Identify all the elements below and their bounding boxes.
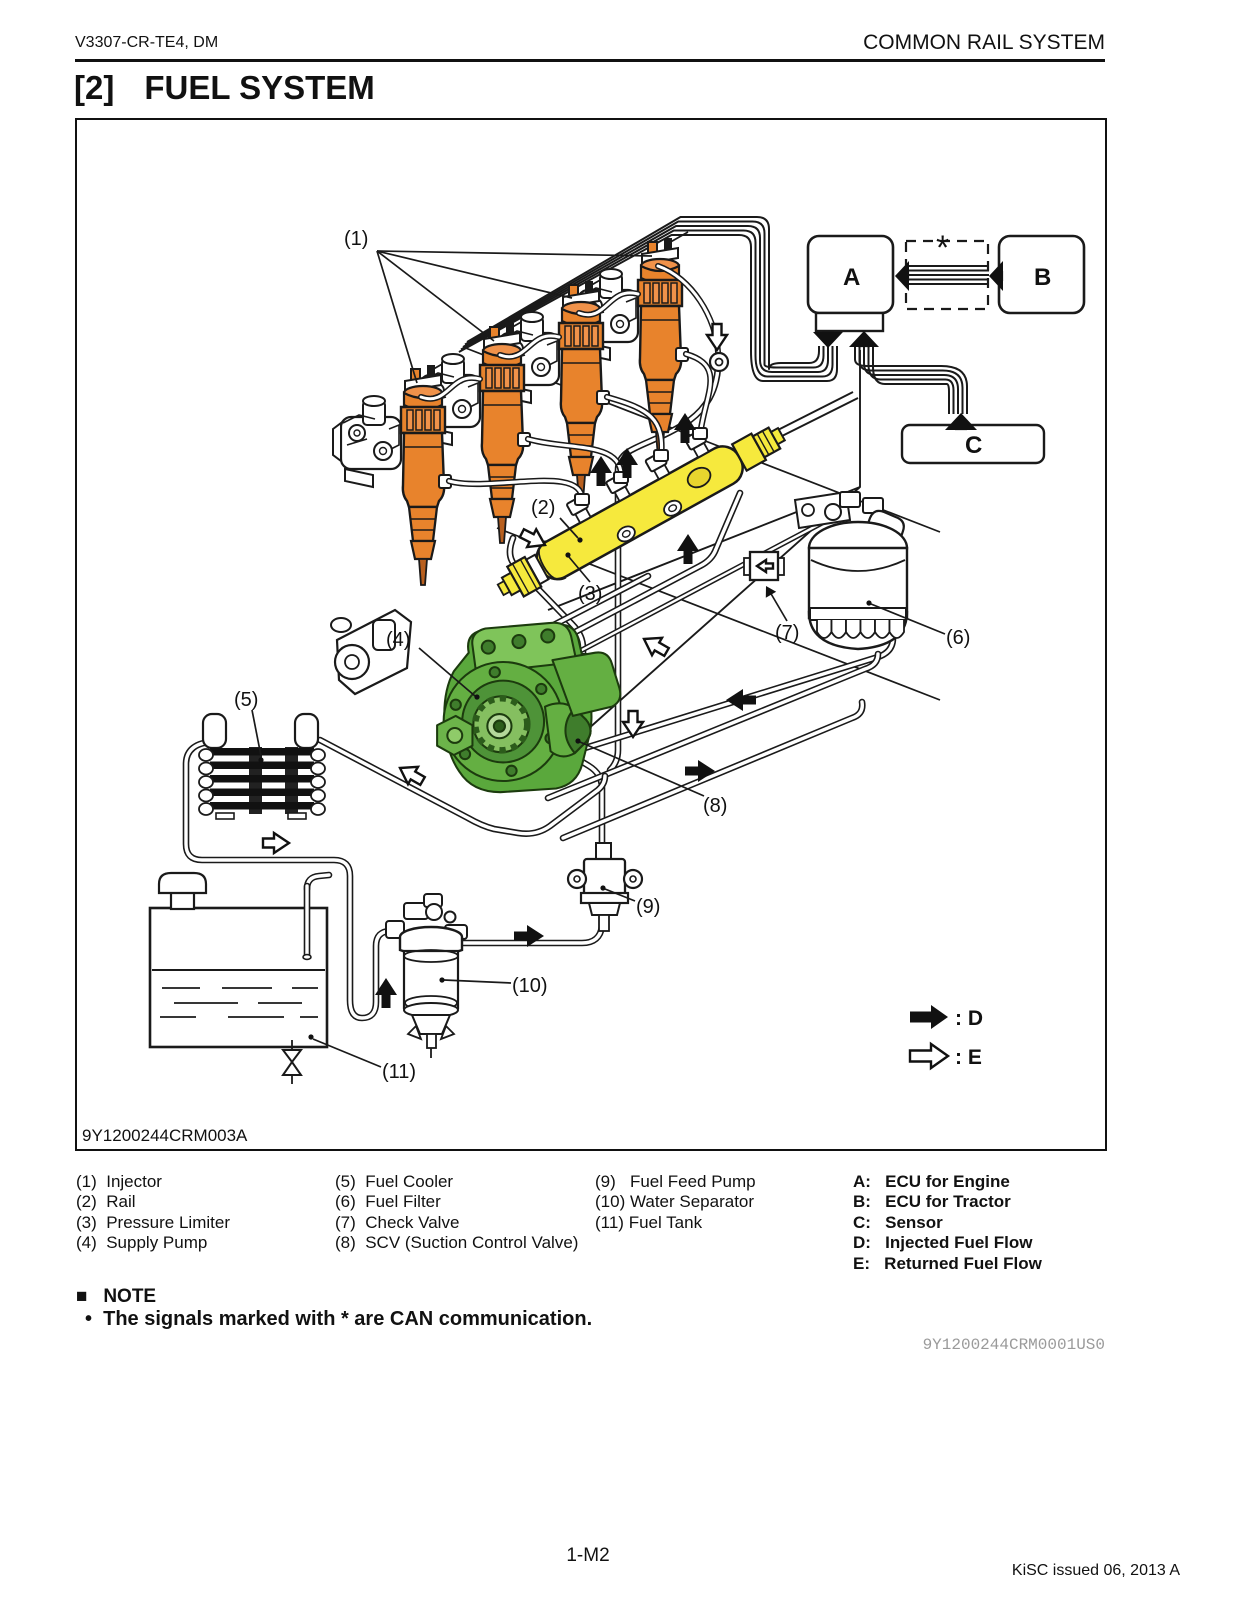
svg-text:(4): (4)	[386, 629, 410, 651]
svg-text:B: B	[1034, 264, 1051, 291]
svg-text:(7): (7)	[775, 622, 799, 644]
svg-text:(5): (5)	[234, 689, 258, 711]
svg-text:: E: : E	[955, 1046, 982, 1069]
svg-text:C: C	[965, 432, 982, 459]
svg-text:*: *	[936, 229, 949, 267]
svg-text:(3): (3)	[578, 583, 602, 605]
svg-text:A: A	[843, 264, 860, 291]
svg-text:(10): (10)	[512, 975, 548, 997]
svg-text:(2): (2)	[531, 497, 555, 519]
svg-text:: D: : D	[955, 1007, 983, 1030]
svg-text:(1): (1)	[344, 228, 368, 250]
svg-text:(11): (11)	[382, 1061, 416, 1083]
svg-text:(6): (6)	[946, 627, 970, 649]
svg-text:(9): (9)	[636, 896, 660, 918]
svg-text:(8): (8)	[703, 795, 727, 817]
